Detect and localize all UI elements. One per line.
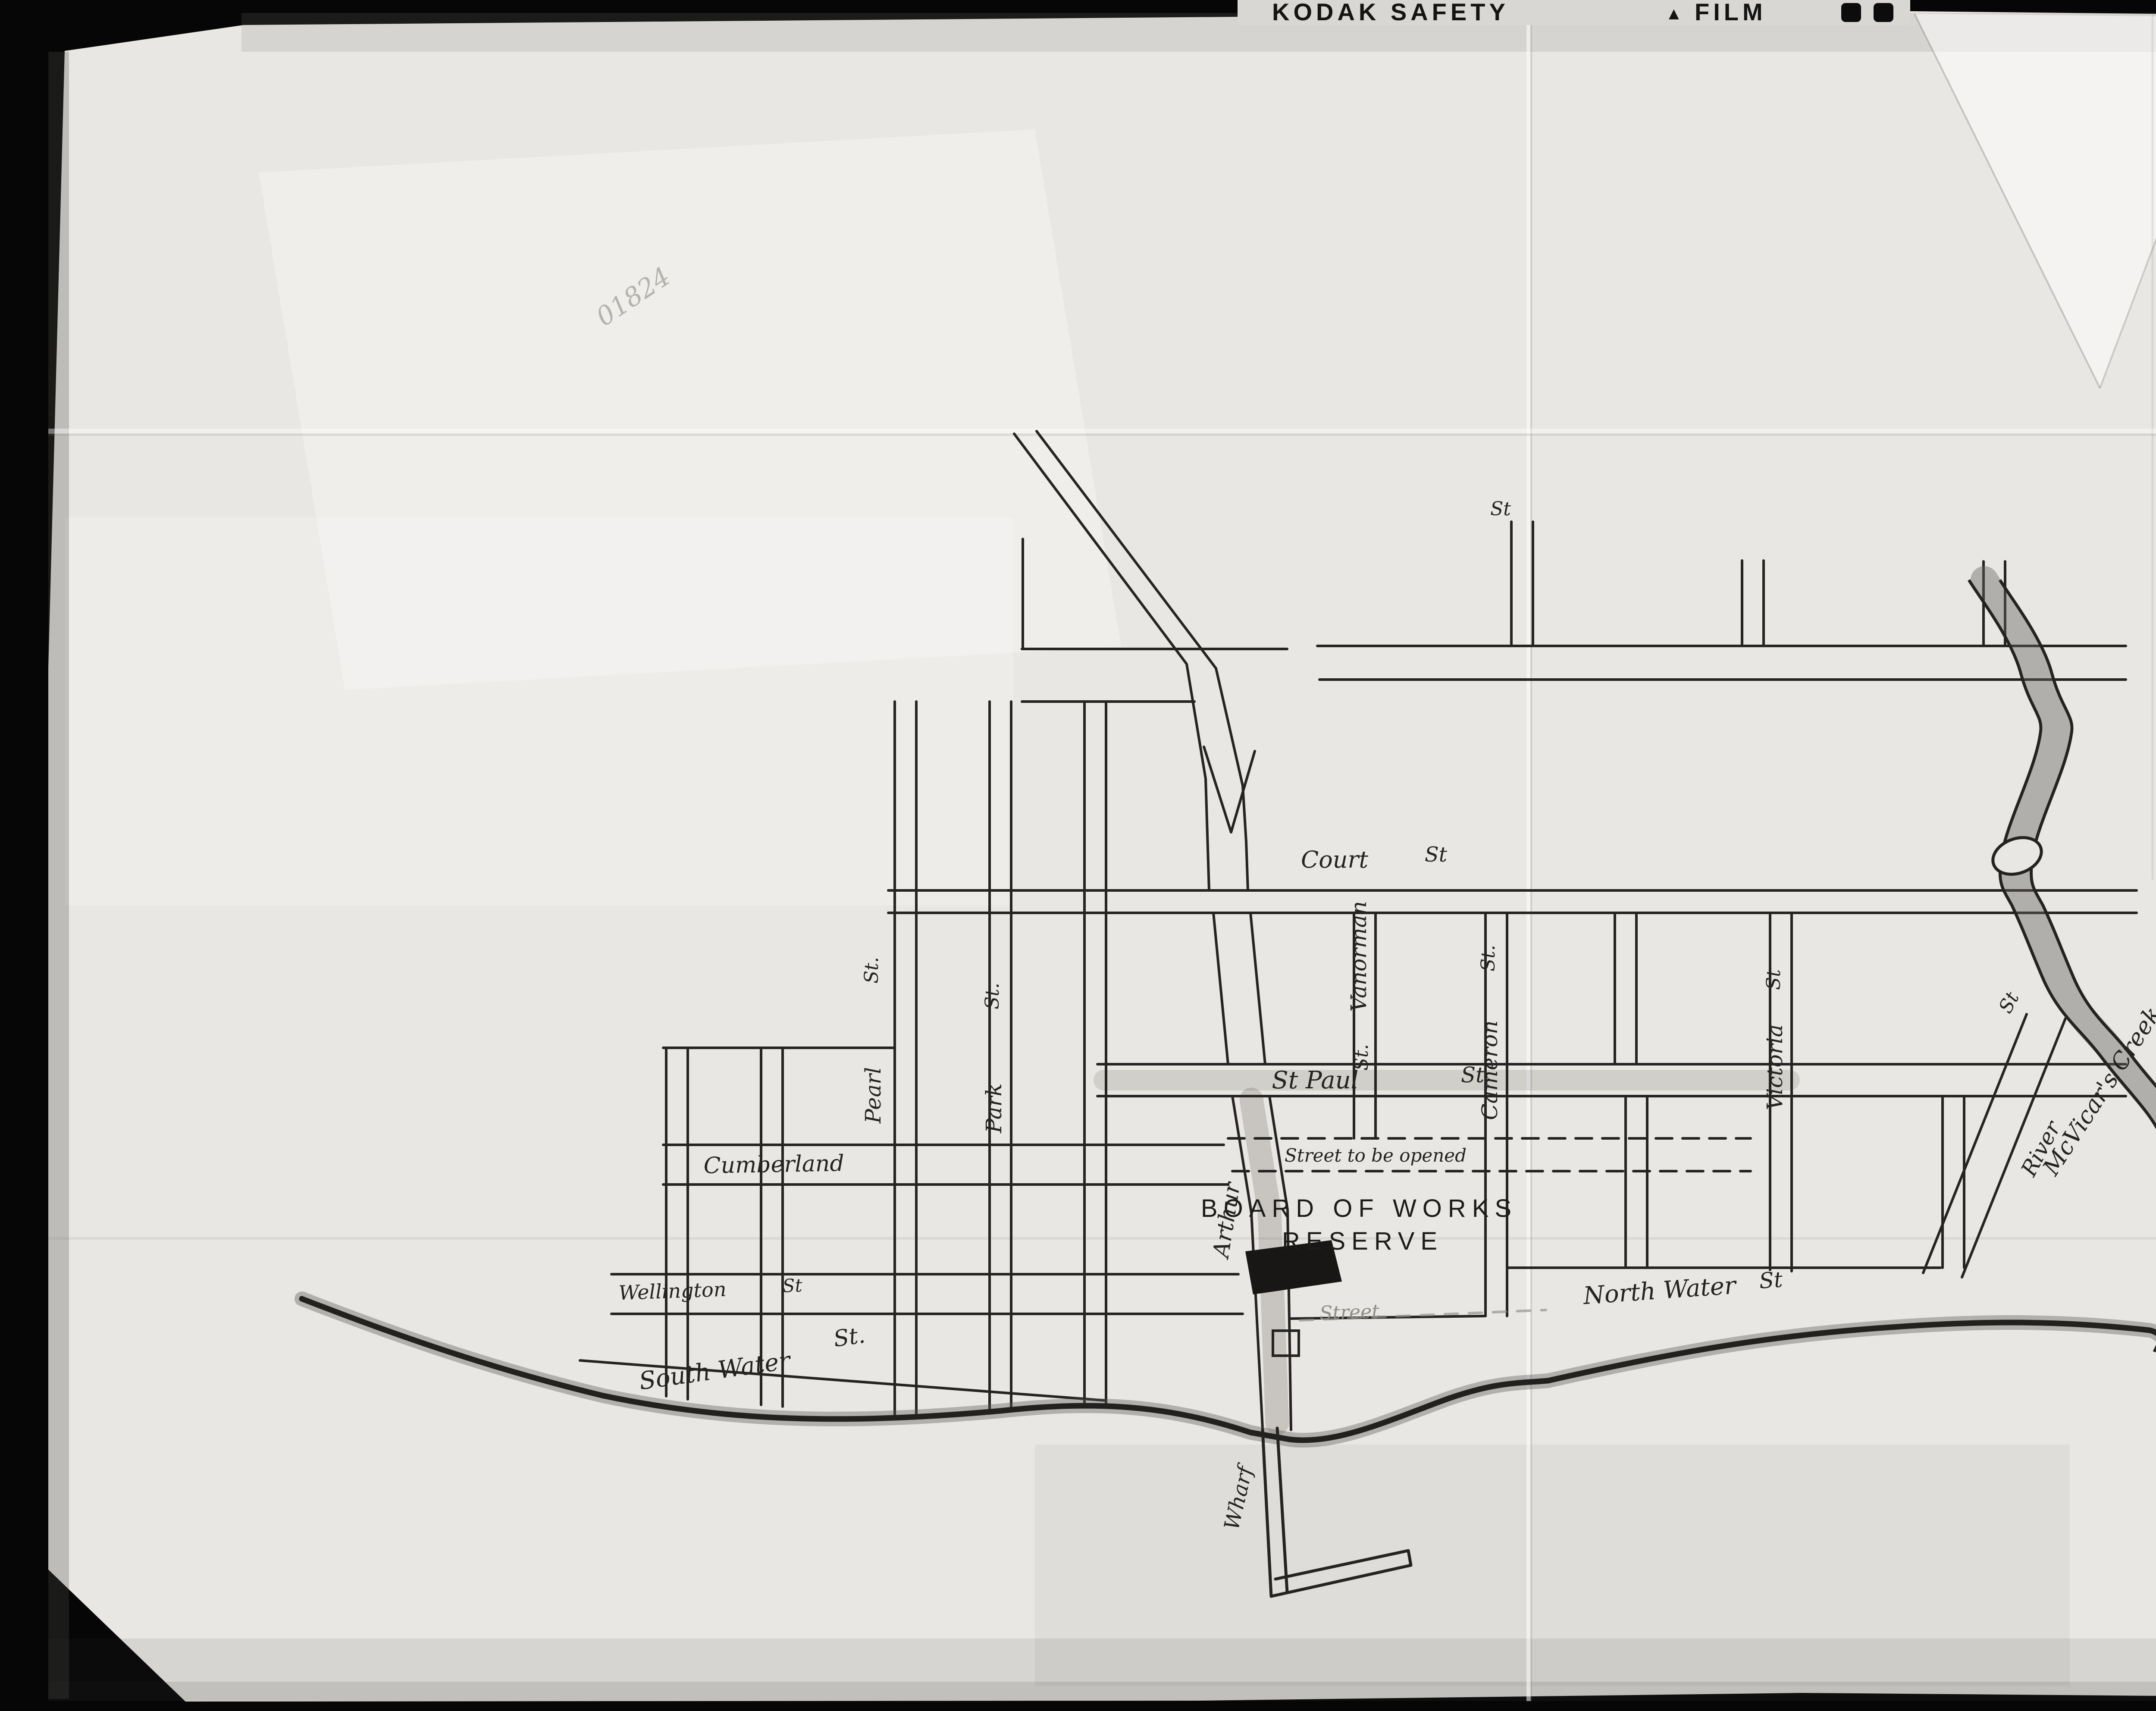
film-frame-mark-icon	[1874, 3, 1893, 22]
film-triangle-icon: ▲	[1665, 4, 1683, 23]
street-label-wellington-suffix: St	[782, 1275, 802, 1297]
street-label-park: Park	[981, 1083, 1006, 1133]
street-label-to-be-opened: Street to be opened	[1285, 1145, 1467, 1166]
reserve-label-line2: RESERVE	[1282, 1227, 1443, 1255]
street-label-south-water-suffix: St.	[832, 1322, 867, 1352]
street-label-vanorman-suffix: St.	[1351, 1044, 1373, 1071]
paper-edge-shadow	[48, 52, 69, 1699]
film-header: KODAK SAFETY ▲ FILM	[1238, 0, 1910, 25]
street-label-victoria: Victoria	[1762, 1024, 1787, 1110]
street-label-faint-street: Street	[1319, 1300, 1380, 1325]
paper-shadow	[48, 1682, 2156, 1701]
street-label-court-suffix: St	[1425, 843, 1448, 867]
street-label-cameron-suffix: St.	[1477, 945, 1499, 971]
street-label-pearl: Pearl	[861, 1067, 886, 1124]
microfilm-scan: KODAK SAFETY ▲ FILM 001824 01824 2a N	[0, 0, 2156, 1711]
reserve-label-line1: BOARD OF WORKS	[1201, 1194, 1517, 1222]
street-label-wellington: Wellington	[618, 1278, 727, 1305]
street-label-park-suffix: St.	[981, 983, 1003, 1009]
street-label-cameron: Cameron	[1477, 1020, 1502, 1120]
street-label-vanorman: Vanorman	[1346, 901, 1371, 1012]
film-brand-text2: FILM	[1695, 0, 1767, 25]
film-frame-mark-icon	[1841, 3, 1861, 22]
street-label-top-suffix: St	[1490, 498, 1511, 520]
street-label-pearl-suffix: St.	[861, 957, 883, 984]
film-brand-text: KODAK SAFETY	[1272, 0, 1509, 25]
street-label-st-paul: St Paul	[1272, 1066, 1358, 1094]
street-label-cumberland: Cumberland	[703, 1150, 844, 1179]
paper-highlight	[65, 517, 1013, 906]
street-label-north-water-suffix: St	[1758, 1267, 1784, 1294]
map-sheet	[48, 11, 2156, 1702]
street-label-court: Court	[1301, 846, 1368, 873]
street-label-victoria-suffix: St	[1763, 969, 1785, 990]
